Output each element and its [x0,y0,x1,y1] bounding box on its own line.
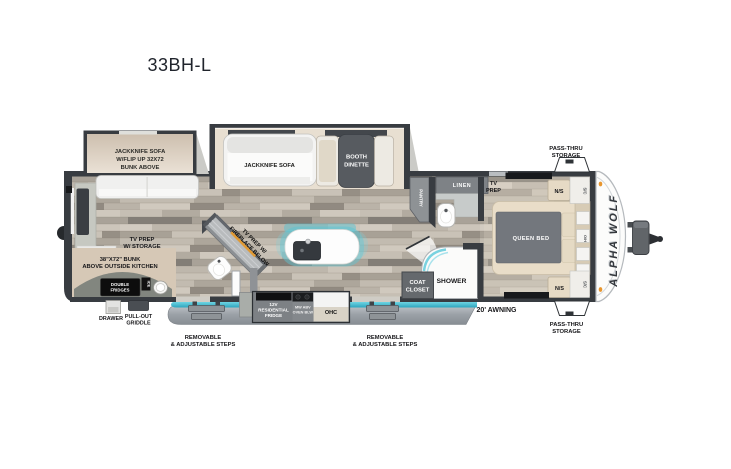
svg-text:BOOTH: BOOTH [346,155,367,161]
svg-text:FRIDGE: FRIDGE [265,313,282,318]
svg-text:PULL-OUT: PULL-OUT [125,314,153,320]
svg-text:COAT: COAT [410,280,426,286]
svg-text:N/S: N/S [555,189,564,195]
svg-text:DRAWER: DRAWER [99,316,123,322]
svg-text:O/H: O/H [583,235,588,242]
svg-text:W/FLIP UP 32X72: W/FLIP UP 32X72 [116,157,163,163]
svg-text:20' AWNING: 20' AWNING [477,307,517,314]
svg-text:12V: 12V [269,302,278,307]
svg-text:LINEN: LINEN [453,183,472,189]
svg-text:RESIDENTIAL: RESIDENTIAL [258,308,289,313]
svg-text:TV PREP: TV PREP [130,237,155,243]
svg-text:QUEEN BED: QUEEN BED [513,236,550,242]
svg-text:& ADJUSTABLE STEPS: & ADJUSTABLE STEPS [353,342,418,348]
svg-text:BUNK ABOVE: BUNK ABOVE [121,165,160,171]
svg-text:MW ABV: MW ABV [295,306,311,310]
svg-text:JACKKNIFE SOFA: JACKKNIFE SOFA [115,149,166,155]
svg-text:33BH-L: 33BH-L [147,55,211,75]
svg-text:PASS-THRU: PASS-THRU [550,322,583,328]
svg-text:GRIDDLE: GRIDDLE [126,321,151,327]
svg-text:STORAGE: STORAGE [552,153,581,159]
svg-text:REMOVABLE: REMOVABLE [185,335,222,341]
svg-text:PASS-THRU: PASS-THRU [549,146,582,152]
svg-text:N/S: N/S [555,286,564,292]
svg-text:ALPHA WOLF: ALPHA WOLF [608,194,620,288]
svg-text:CLOSET: CLOSET [406,288,430,294]
svg-text:OVEN BLW: OVEN BLW [293,311,314,315]
svg-text:ICE: ICE [147,281,152,288]
svg-text:& ADJUSTABLE STEPS: & ADJUSTABLE STEPS [171,342,236,348]
svg-text:SHOWER: SHOWER [437,278,467,285]
svg-text:TV: TV [490,181,497,187]
svg-text:38"X72" BUNK: 38"X72" BUNK [100,257,141,263]
svg-text:DINETTE: DINETTE [344,163,369,169]
svg-text:ABOVE OUTSIDE KITCHEN: ABOVE OUTSIDE KITCHEN [82,264,157,270]
svg-text:FRIDGES: FRIDGES [110,288,129,293]
svg-text:STORAGE: STORAGE [552,329,581,335]
svg-text:OHC: OHC [325,310,337,316]
svg-text:DOUBLE: DOUBLE [111,282,129,287]
svg-text:REMOVABLE: REMOVABLE [367,335,404,341]
svg-text:PANTRY: PANTRY [419,189,424,207]
svg-text:S/C: S/C [583,188,588,195]
svg-text:PREP: PREP [486,188,501,194]
svg-text:S/C: S/C [583,281,588,288]
svg-text:JACKKNIFE SOFA: JACKKNIFE SOFA [244,163,295,169]
